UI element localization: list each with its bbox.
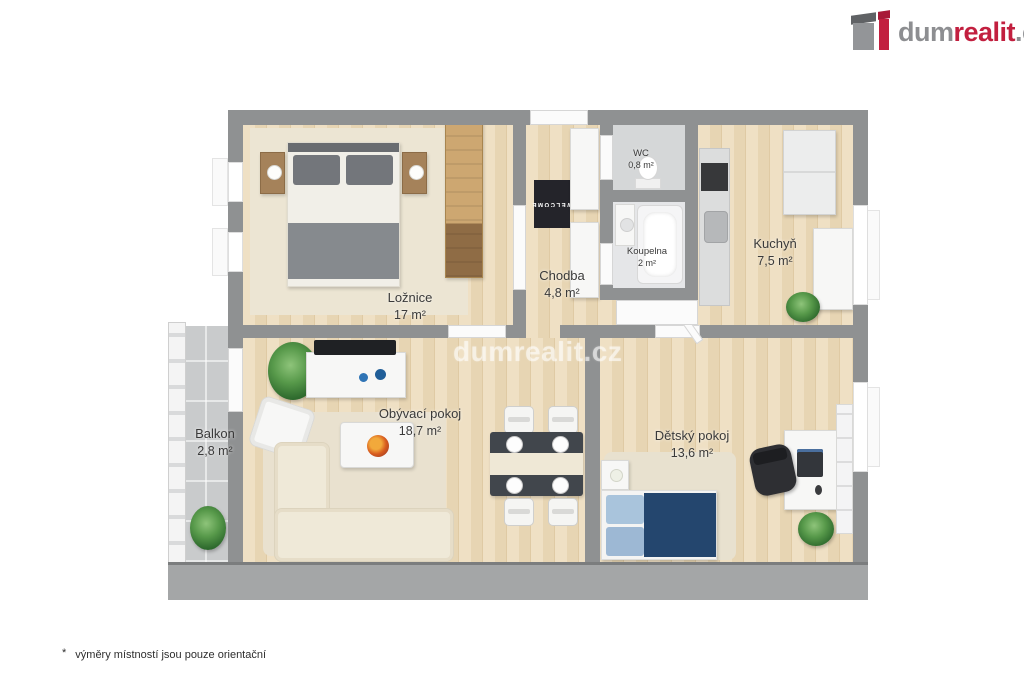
kitchen-sink xyxy=(704,211,728,243)
wall-wc-koupelna xyxy=(613,190,685,202)
hall-cabinet-upper xyxy=(570,128,599,210)
dining-chair xyxy=(504,498,534,526)
room-label-koupelna: Koupelna 2 m² xyxy=(627,246,667,270)
dumrealit-house-icon xyxy=(851,11,891,52)
room-name: Kuchyň xyxy=(753,236,796,253)
wall-mid-a xyxy=(228,325,448,338)
sofa-seat xyxy=(274,508,454,562)
dumrealit-logo: dumrealit.cz xyxy=(851,11,1024,52)
room-name: Dětský pokoj xyxy=(655,428,729,445)
lamp xyxy=(610,469,623,482)
wall-bottom xyxy=(168,562,868,600)
wc-door xyxy=(600,135,613,180)
bathtub xyxy=(637,205,683,284)
children-nightstand xyxy=(601,460,629,490)
children-window xyxy=(853,382,868,472)
room-area: 0,8 m² xyxy=(628,160,654,172)
room-label-loznice: Ložnice 17 m² xyxy=(388,290,433,323)
dining-table xyxy=(490,432,583,496)
bed-pillow-blue xyxy=(606,495,644,524)
bedroom-hall-door xyxy=(513,205,526,290)
kitchen-plant xyxy=(786,292,820,322)
wall-top-right-segment xyxy=(588,110,868,125)
room-name: Koupelna xyxy=(627,246,667,258)
sink-vanity xyxy=(615,204,635,246)
logo-text-cz: .cz xyxy=(1015,17,1024,47)
wall-right xyxy=(853,110,868,562)
logo-text-dum: dum xyxy=(898,17,954,47)
room-area: 13,6 m² xyxy=(655,445,729,461)
stove xyxy=(701,163,728,191)
plate xyxy=(552,436,569,453)
koupelna-door xyxy=(600,243,613,285)
double-bed xyxy=(287,142,400,287)
decor-dot-blue xyxy=(359,373,368,382)
wall-mid-d xyxy=(700,325,853,338)
mouse xyxy=(815,485,822,495)
plate xyxy=(552,477,569,494)
wardrobe xyxy=(445,118,483,278)
window-sill xyxy=(212,228,228,276)
plate xyxy=(506,436,523,453)
kitchen-window xyxy=(853,205,868,305)
fridge xyxy=(783,130,836,215)
dining-chair xyxy=(548,498,578,526)
bedroom-window xyxy=(228,232,243,272)
table-runner xyxy=(490,453,583,475)
room-area: 18,7 m² xyxy=(379,423,461,439)
footnote-asterisk: * xyxy=(62,647,66,659)
tv xyxy=(314,340,396,355)
lamp xyxy=(267,165,282,180)
footnote-text: výměry místností jsou pouze orientační xyxy=(75,649,266,661)
bed-pillow-right xyxy=(346,155,393,185)
tv-stand xyxy=(306,352,406,398)
lamp xyxy=(409,165,424,180)
kitchen-passage-door xyxy=(616,300,698,325)
balcony-railing xyxy=(168,322,186,568)
room-label-detsky-pokoj: Dětský pokoj 13,6 m² xyxy=(655,428,729,461)
children-plant xyxy=(798,512,834,546)
room-area: 7,5 m² xyxy=(753,253,796,269)
bookshelf xyxy=(836,404,853,534)
bed-pillow-left xyxy=(293,155,340,185)
fridge-divider xyxy=(784,171,835,173)
footnote: *výměry místností jsou pouze orientační xyxy=(62,647,266,661)
logo-text: dumrealit.cz xyxy=(898,12,1024,52)
dining-chair xyxy=(504,406,534,434)
entry-door xyxy=(530,110,588,125)
nightstand-left xyxy=(260,152,285,194)
room-name: Ložnice xyxy=(388,290,433,307)
room-area: 17 m² xyxy=(388,307,433,323)
logo-text-realit: realit xyxy=(954,17,1016,47)
bed-pillow-blue xyxy=(606,527,644,556)
kitchen-counter xyxy=(699,148,730,306)
wall-bath-kitchen xyxy=(685,125,698,300)
nightstand-right xyxy=(402,152,427,194)
room-name: WC xyxy=(628,148,654,160)
room-label-obyvaci-pokoj: Obývací pokoj 18,7 m² xyxy=(379,406,461,439)
decor-dot-blue xyxy=(375,369,386,380)
bed-headboard xyxy=(288,143,399,152)
window-sill xyxy=(212,158,228,206)
window-sill xyxy=(866,387,880,467)
balcony-door xyxy=(228,348,243,412)
window-sill xyxy=(866,210,880,300)
logo-red-bar-shape xyxy=(879,19,889,50)
wall-living-children xyxy=(585,338,600,562)
doormat-text: WELCOME xyxy=(531,201,573,207)
bed-blanket-navy xyxy=(644,493,716,557)
welcome-doormat: WELCOME xyxy=(534,180,570,228)
laptop xyxy=(797,449,823,477)
dining-chair xyxy=(548,406,578,434)
bedroom-window xyxy=(228,162,243,202)
room-area: 2 m² xyxy=(627,258,667,270)
balcony-plant xyxy=(190,506,226,550)
bed-blanket xyxy=(288,223,399,279)
wall-koupelna-bottom xyxy=(600,288,698,300)
plate xyxy=(506,477,523,494)
watermark: dumrealit.cz xyxy=(453,336,622,368)
room-area: 2,8 m² xyxy=(195,443,235,459)
room-name: Obývací pokoj xyxy=(379,406,461,423)
sink-basin xyxy=(620,218,634,232)
kitchen-cabinet xyxy=(813,228,853,310)
room-area: 4,8 m² xyxy=(539,285,585,301)
floorplan-page: dumrealit.cz WELCOME xyxy=(0,0,1024,682)
room-label-chodba: Chodba 4,8 m² xyxy=(539,268,585,301)
room-name: Balkon xyxy=(195,426,235,443)
floor-plan: WELCOME xyxy=(168,110,868,597)
room-label-kuchyn: Kuchyň 7,5 m² xyxy=(753,236,796,269)
office-chair-back xyxy=(752,447,788,466)
room-label-balkon: Balkon 2,8 m² xyxy=(195,426,235,459)
logo-body-shape xyxy=(853,23,874,50)
children-bed xyxy=(601,490,717,560)
room-label-wc: WC 0,8 m² xyxy=(628,148,654,172)
room-name: Chodba xyxy=(539,268,585,285)
wall-top-left-segment xyxy=(228,110,530,125)
